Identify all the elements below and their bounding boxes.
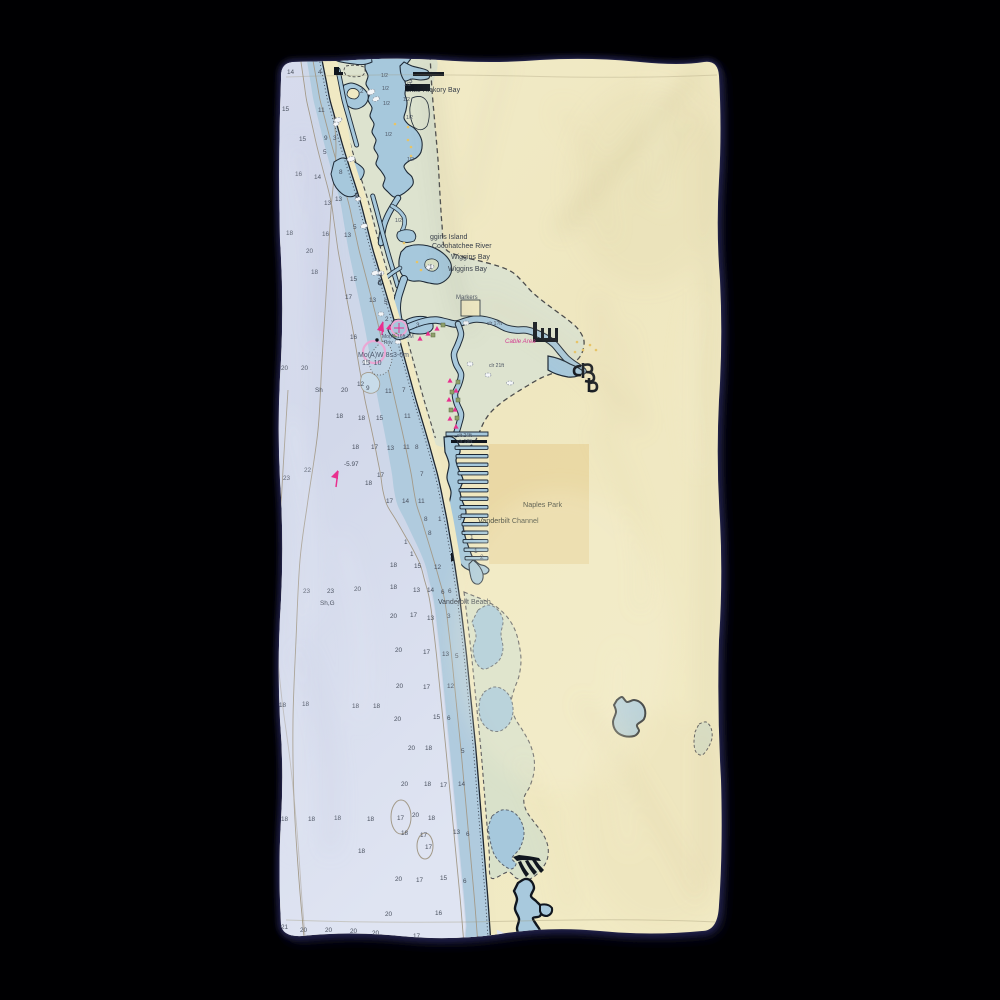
- svg-text:8: 8: [355, 193, 359, 200]
- svg-text:6: 6: [447, 715, 451, 722]
- svg-text:20: 20: [401, 781, 409, 788]
- svg-text:18: 18: [424, 781, 432, 788]
- svg-text:17: 17: [371, 444, 379, 451]
- svg-text:7: 7: [402, 387, 406, 394]
- svg-text:13: 13: [427, 615, 435, 622]
- svg-text:1: 1: [410, 551, 414, 558]
- svg-text:15: 15: [350, 276, 358, 283]
- svg-text:15: 15: [376, 415, 384, 422]
- svg-text:1/2: 1/2: [407, 157, 414, 163]
- svg-text:8: 8: [415, 444, 419, 451]
- svg-text:clr 1?ft: clr 1?ft: [487, 321, 503, 327]
- svg-text:20: 20: [281, 365, 289, 372]
- svg-text:12: 12: [447, 683, 455, 690]
- svg-text:13: 13: [442, 651, 450, 658]
- svg-text:6: 6: [448, 588, 452, 595]
- svg-text:1/2: 1/2: [382, 86, 389, 92]
- svg-text:13: 13: [335, 196, 343, 203]
- svg-text:15: 15: [433, 714, 441, 721]
- svg-text:13: 13: [387, 445, 395, 452]
- svg-text:18: 18: [390, 562, 398, 569]
- svg-text:13: 13: [324, 200, 332, 207]
- svg-text:3: 3: [333, 135, 337, 142]
- svg-text:20: 20: [395, 876, 403, 883]
- svg-text:18: 18: [373, 703, 381, 710]
- svg-text:8: 8: [378, 279, 382, 286]
- svg-text:18: 18: [425, 745, 433, 752]
- svg-text:13: 13: [413, 587, 421, 594]
- svg-text:-5.97: -5.97: [344, 461, 359, 468]
- svg-text:20: 20: [325, 927, 333, 934]
- svg-text:20: 20: [395, 647, 403, 654]
- svg-text:1/2: 1/2: [385, 132, 392, 138]
- svg-text:18: 18: [358, 848, 366, 855]
- svg-text:16: 16: [435, 910, 443, 917]
- svg-text:11: 11: [318, 107, 325, 114]
- svg-text:18: 18: [428, 815, 436, 822]
- svg-text:18: 18: [352, 444, 360, 451]
- svg-text:17: 17: [377, 472, 385, 479]
- svg-text:1/2: 1/2: [381, 73, 388, 79]
- svg-text:8: 8: [424, 516, 428, 523]
- svg-text:13: 13: [344, 232, 352, 239]
- svg-text:20: 20: [394, 716, 402, 723]
- svg-text:6: 6: [441, 589, 445, 596]
- svg-text:11: 11: [385, 388, 392, 395]
- svg-text:1/2: 1/2: [406, 115, 413, 121]
- svg-text:17: 17: [410, 612, 418, 619]
- svg-text:18: 18: [308, 816, 316, 823]
- svg-text:20: 20: [412, 812, 420, 819]
- svg-text:15: 15: [282, 106, 290, 113]
- svg-text:15: 15: [440, 875, 448, 882]
- svg-text:14: 14: [458, 781, 466, 788]
- svg-text:2: 2: [360, 88, 364, 95]
- svg-text:Sh,G: Sh,G: [320, 600, 335, 607]
- svg-text:16: 16: [350, 334, 358, 341]
- svg-text:8: 8: [428, 530, 432, 537]
- svg-text:Mo(A)W 8s3-6m: Mo(A)W 8s3-6m: [358, 352, 409, 359]
- svg-text:17: 17: [416, 877, 424, 884]
- svg-text:1: 1: [404, 539, 408, 546]
- svg-text:1/2: 1/2: [404, 82, 411, 88]
- svg-text:18: 18: [401, 830, 409, 837]
- svg-text:5: 5: [461, 748, 465, 755]
- svg-text:13: 13: [453, 829, 461, 836]
- svg-text:20: 20: [341, 387, 349, 394]
- svg-text:18: 18: [336, 413, 344, 420]
- svg-text:Wiggins Bay: Wiggins Bay: [451, 254, 490, 261]
- svg-text:20: 20: [396, 683, 404, 690]
- svg-text:1: 1: [462, 527, 466, 534]
- svg-text:4: 4: [318, 69, 322, 76]
- svg-text:11: 11: [404, 413, 411, 420]
- svg-text:clr 21ft: clr 21ft: [489, 363, 505, 369]
- svg-text:17: 17: [423, 649, 431, 656]
- svg-text:5: 5: [323, 149, 327, 156]
- svg-text:3: 3: [447, 613, 451, 620]
- svg-text:18: 18: [302, 701, 310, 708]
- svg-text:7: 7: [420, 471, 424, 478]
- svg-text:20: 20: [408, 745, 416, 752]
- svg-text:Sh: Sh: [315, 387, 323, 394]
- svg-text:20: 20: [390, 613, 398, 620]
- svg-text:1/2: 1/2: [383, 101, 390, 107]
- svg-text:1: 1: [470, 534, 474, 541]
- svg-text:9: 9: [324, 135, 328, 142]
- svg-text:17: 17: [386, 498, 394, 505]
- svg-text:6: 6: [466, 831, 470, 838]
- svg-text:17: 17: [345, 294, 353, 301]
- svg-text:18: 18: [281, 816, 289, 823]
- svg-text:20: 20: [301, 365, 309, 372]
- svg-text:18: 18: [358, 415, 366, 422]
- svg-text:15: 15: [414, 563, 422, 570]
- svg-text:18: 18: [311, 269, 319, 276]
- svg-text:Cable Area: Cable Area: [505, 338, 536, 345]
- svg-text:20: 20: [300, 927, 308, 934]
- svg-text:1/2: 1/2: [403, 97, 410, 103]
- svg-text:17: 17: [423, 684, 431, 691]
- svg-text:11: 11: [403, 444, 410, 451]
- svg-text:5: 5: [458, 515, 462, 522]
- svg-text:17: 17: [440, 782, 448, 789]
- svg-text:14: 14: [402, 498, 410, 505]
- svg-text:12: 12: [434, 564, 442, 571]
- svg-text:clr 18ft: clr 18ft: [457, 439, 473, 445]
- svg-text:13: 13: [369, 297, 377, 304]
- svg-text:1/2: 1/2: [395, 218, 402, 224]
- svg-text:6: 6: [463, 878, 467, 885]
- svg-text:17: 17: [420, 832, 428, 839]
- svg-text:Priv: Priv: [384, 340, 393, 346]
- svg-text:5: 5: [384, 299, 388, 306]
- svg-text:9: 9: [366, 385, 370, 392]
- svg-text:12: 12: [357, 381, 365, 388]
- svg-text:23: 23: [283, 475, 291, 482]
- svg-text:23: 23: [327, 588, 335, 595]
- svg-text:17: 17: [397, 815, 405, 822]
- svg-text:Cocohatchee River: Cocohatchee River: [432, 243, 492, 250]
- svg-text:5: 5: [353, 224, 357, 231]
- svg-text:11: 11: [418, 498, 425, 505]
- svg-text:15 10: 15 10: [362, 360, 382, 367]
- svg-text:20: 20: [306, 248, 314, 255]
- svg-text:14: 14: [427, 587, 435, 594]
- svg-text:1: 1: [438, 516, 442, 523]
- svg-text:1: 1: [429, 264, 433, 271]
- svg-text:18: 18: [279, 702, 287, 709]
- svg-text:20: 20: [385, 911, 393, 918]
- svg-text:18: 18: [365, 480, 373, 487]
- svg-text:2: 2: [385, 316, 389, 323]
- svg-text:4: 4: [379, 272, 383, 279]
- svg-text:18: 18: [390, 584, 398, 591]
- svg-text:8: 8: [339, 169, 343, 176]
- svg-text:14: 14: [314, 174, 322, 181]
- svg-text:17: 17: [425, 844, 433, 851]
- svg-text:18: 18: [367, 816, 375, 823]
- svg-text:3: 3: [416, 322, 420, 329]
- svg-text:14: 14: [287, 69, 295, 76]
